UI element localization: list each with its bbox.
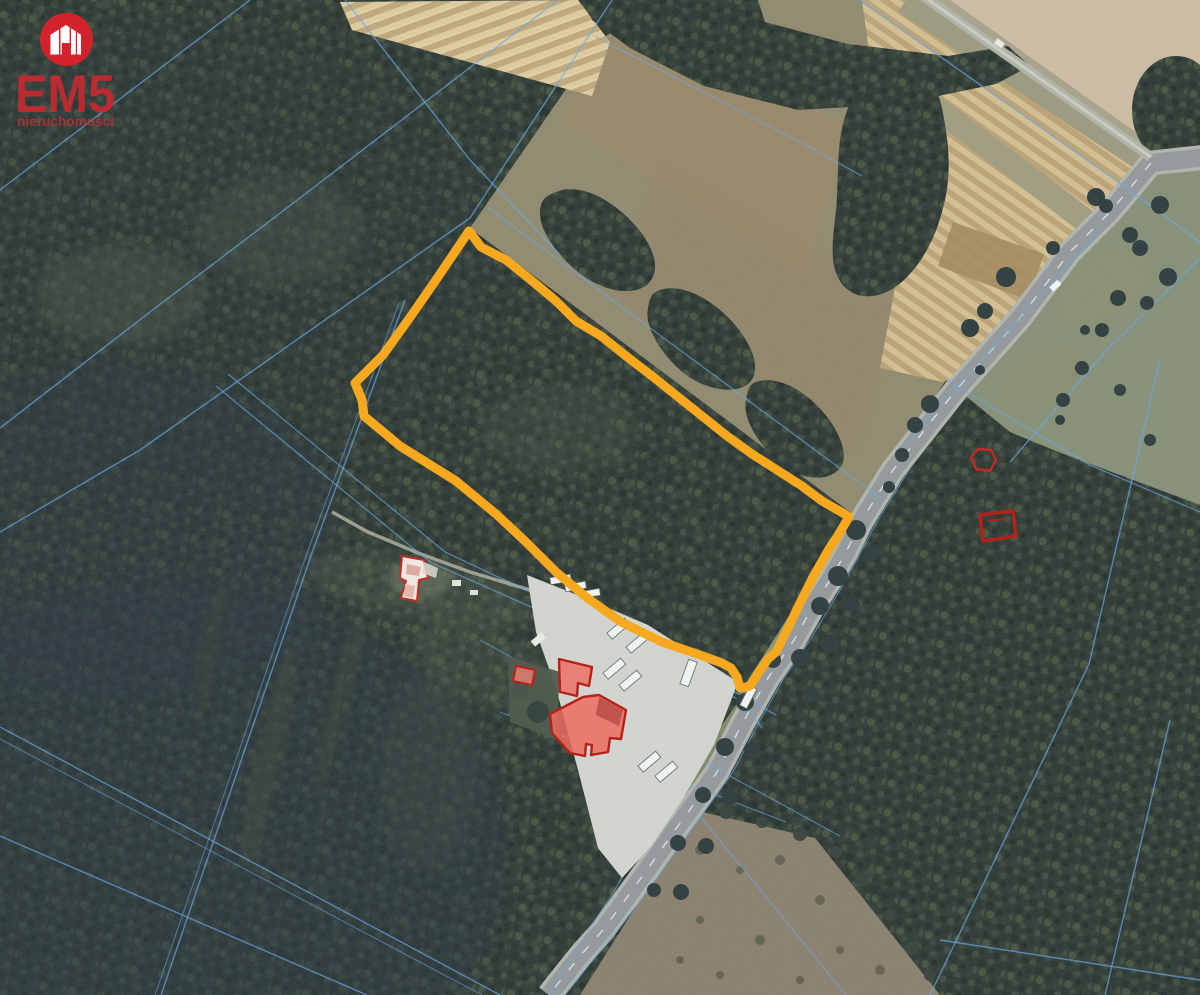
svg-text:nieruchomości: nieruchomości	[17, 114, 114, 129]
